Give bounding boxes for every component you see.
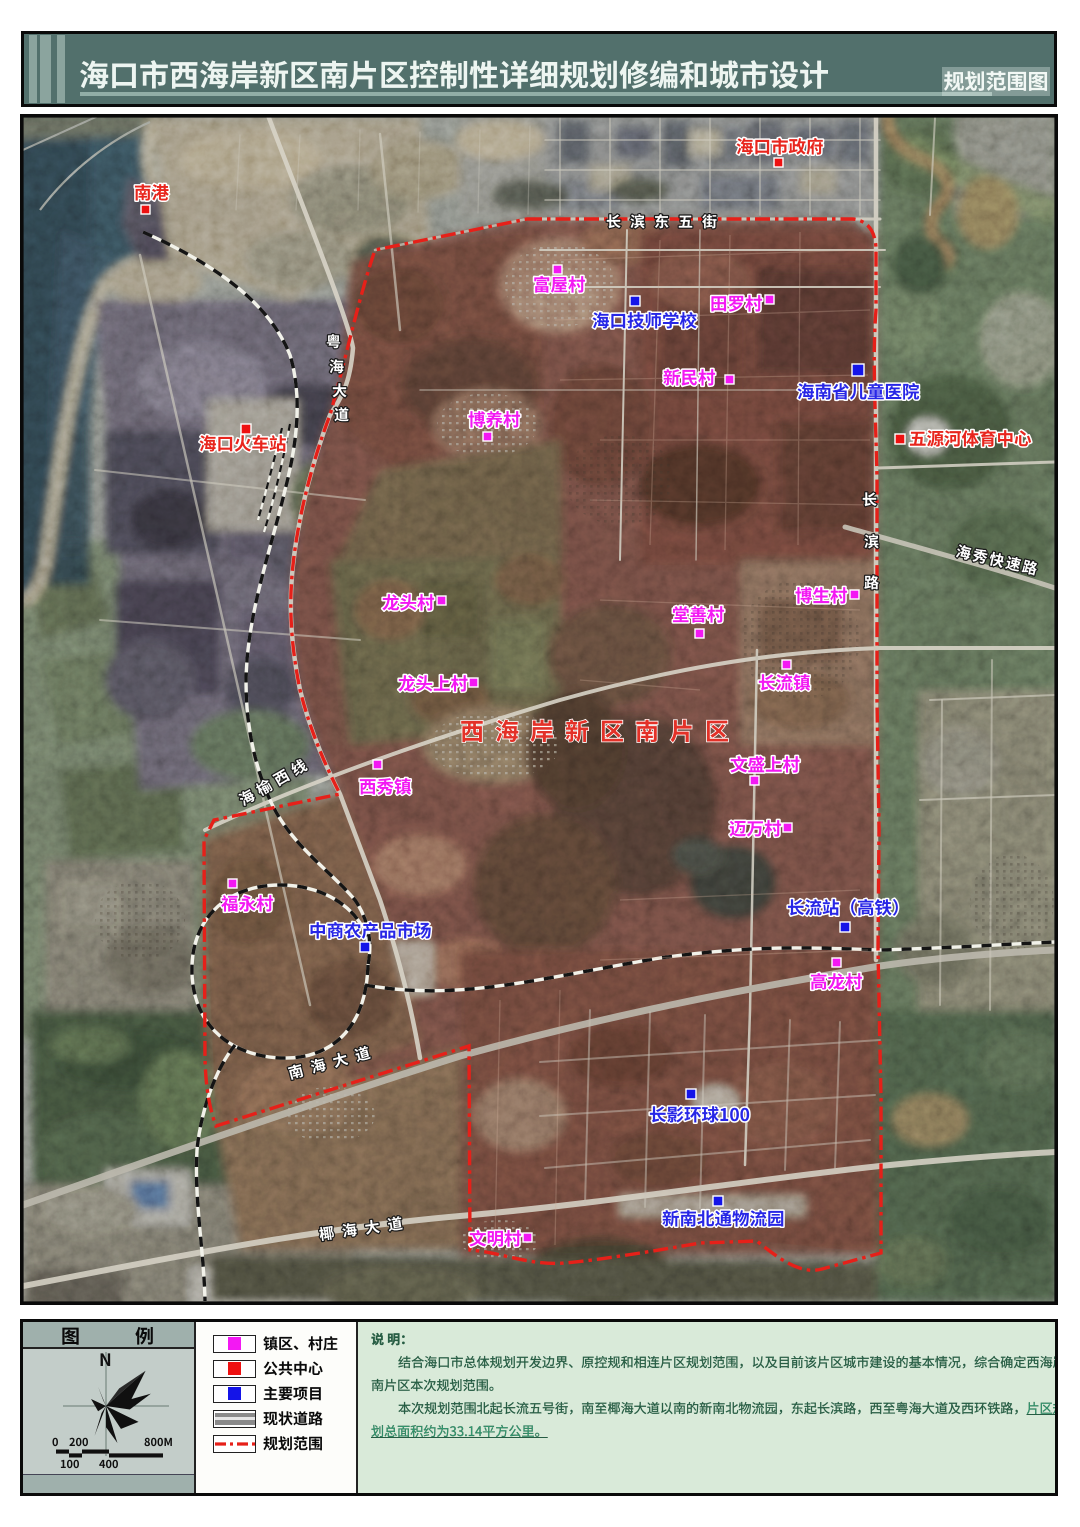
svg-text:迈万村: 迈万村 — [729, 816, 782, 841]
svg-text:西海岸新区南片区: 西海岸新区南片区 — [460, 712, 740, 747]
svg-text:龙头村: 龙头村 — [382, 590, 435, 615]
svg-text:海: 海 — [329, 356, 344, 377]
svg-text:长: 长 — [862, 489, 877, 510]
svg-text:龙头上村: 龙头上村 — [398, 671, 468, 696]
svg-text:中商农产品市场: 中商农产品市场 — [309, 918, 432, 943]
svg-text:长流镇: 长流镇 — [758, 670, 811, 695]
svg-text:路: 路 — [864, 572, 879, 593]
svg-text:高龙村: 高龙村 — [810, 969, 863, 994]
svg-text:福永村: 福永村 — [221, 891, 274, 916]
svg-text:富屋村: 富屋村 — [533, 272, 586, 297]
svg-text:粤: 粤 — [326, 331, 341, 352]
svg-text:西秀镇: 西秀镇 — [359, 774, 412, 799]
svg-text:新民村: 新民村 — [663, 365, 716, 390]
svg-text:海南省儿童医院: 海南省儿童医院 — [797, 379, 920, 404]
svg-text:田罗村: 田罗村 — [710, 291, 763, 316]
svg-text:800M: 800M — [144, 1436, 173, 1450]
svg-text:文盛上村: 文盛上村 — [730, 752, 800, 777]
svg-text:100: 100 — [60, 1456, 79, 1470]
svg-text:五源河体育中心: 五源河体育中心 — [909, 426, 1032, 451]
svg-text:海口技师学校: 海口技师学校 — [592, 308, 697, 333]
svg-text:堂善村: 堂善村 — [672, 602, 725, 627]
svg-text:400: 400 — [99, 1456, 118, 1470]
svg-text:道: 道 — [334, 404, 349, 425]
svg-text:南港: 南港 — [134, 180, 169, 205]
svg-text:长流站（高铁）: 长流站（高铁） — [787, 895, 910, 920]
svg-text:大: 大 — [332, 380, 347, 401]
svg-text:长滨东五街: 长滨东五街 — [606, 211, 726, 232]
svg-text:滨: 滨 — [864, 531, 879, 552]
svg-text:0: 0 — [52, 1436, 59, 1450]
svg-text:文明村: 文明村 — [469, 1226, 522, 1251]
svg-text:海口火车站: 海口火车站 — [199, 431, 287, 456]
svg-text:新南北通物流园: 新南北通物流园 — [662, 1206, 785, 1231]
svg-text:海口市政府: 海口市政府 — [736, 134, 824, 159]
svg-text:博生村: 博生村 — [795, 583, 848, 608]
svg-text:长影环球100: 长影环球100 — [649, 1102, 750, 1127]
svg-text:200: 200 — [69, 1436, 88, 1450]
svg-text:博养村: 博养村 — [468, 407, 521, 432]
svg-text:N: N — [99, 1346, 112, 1371]
